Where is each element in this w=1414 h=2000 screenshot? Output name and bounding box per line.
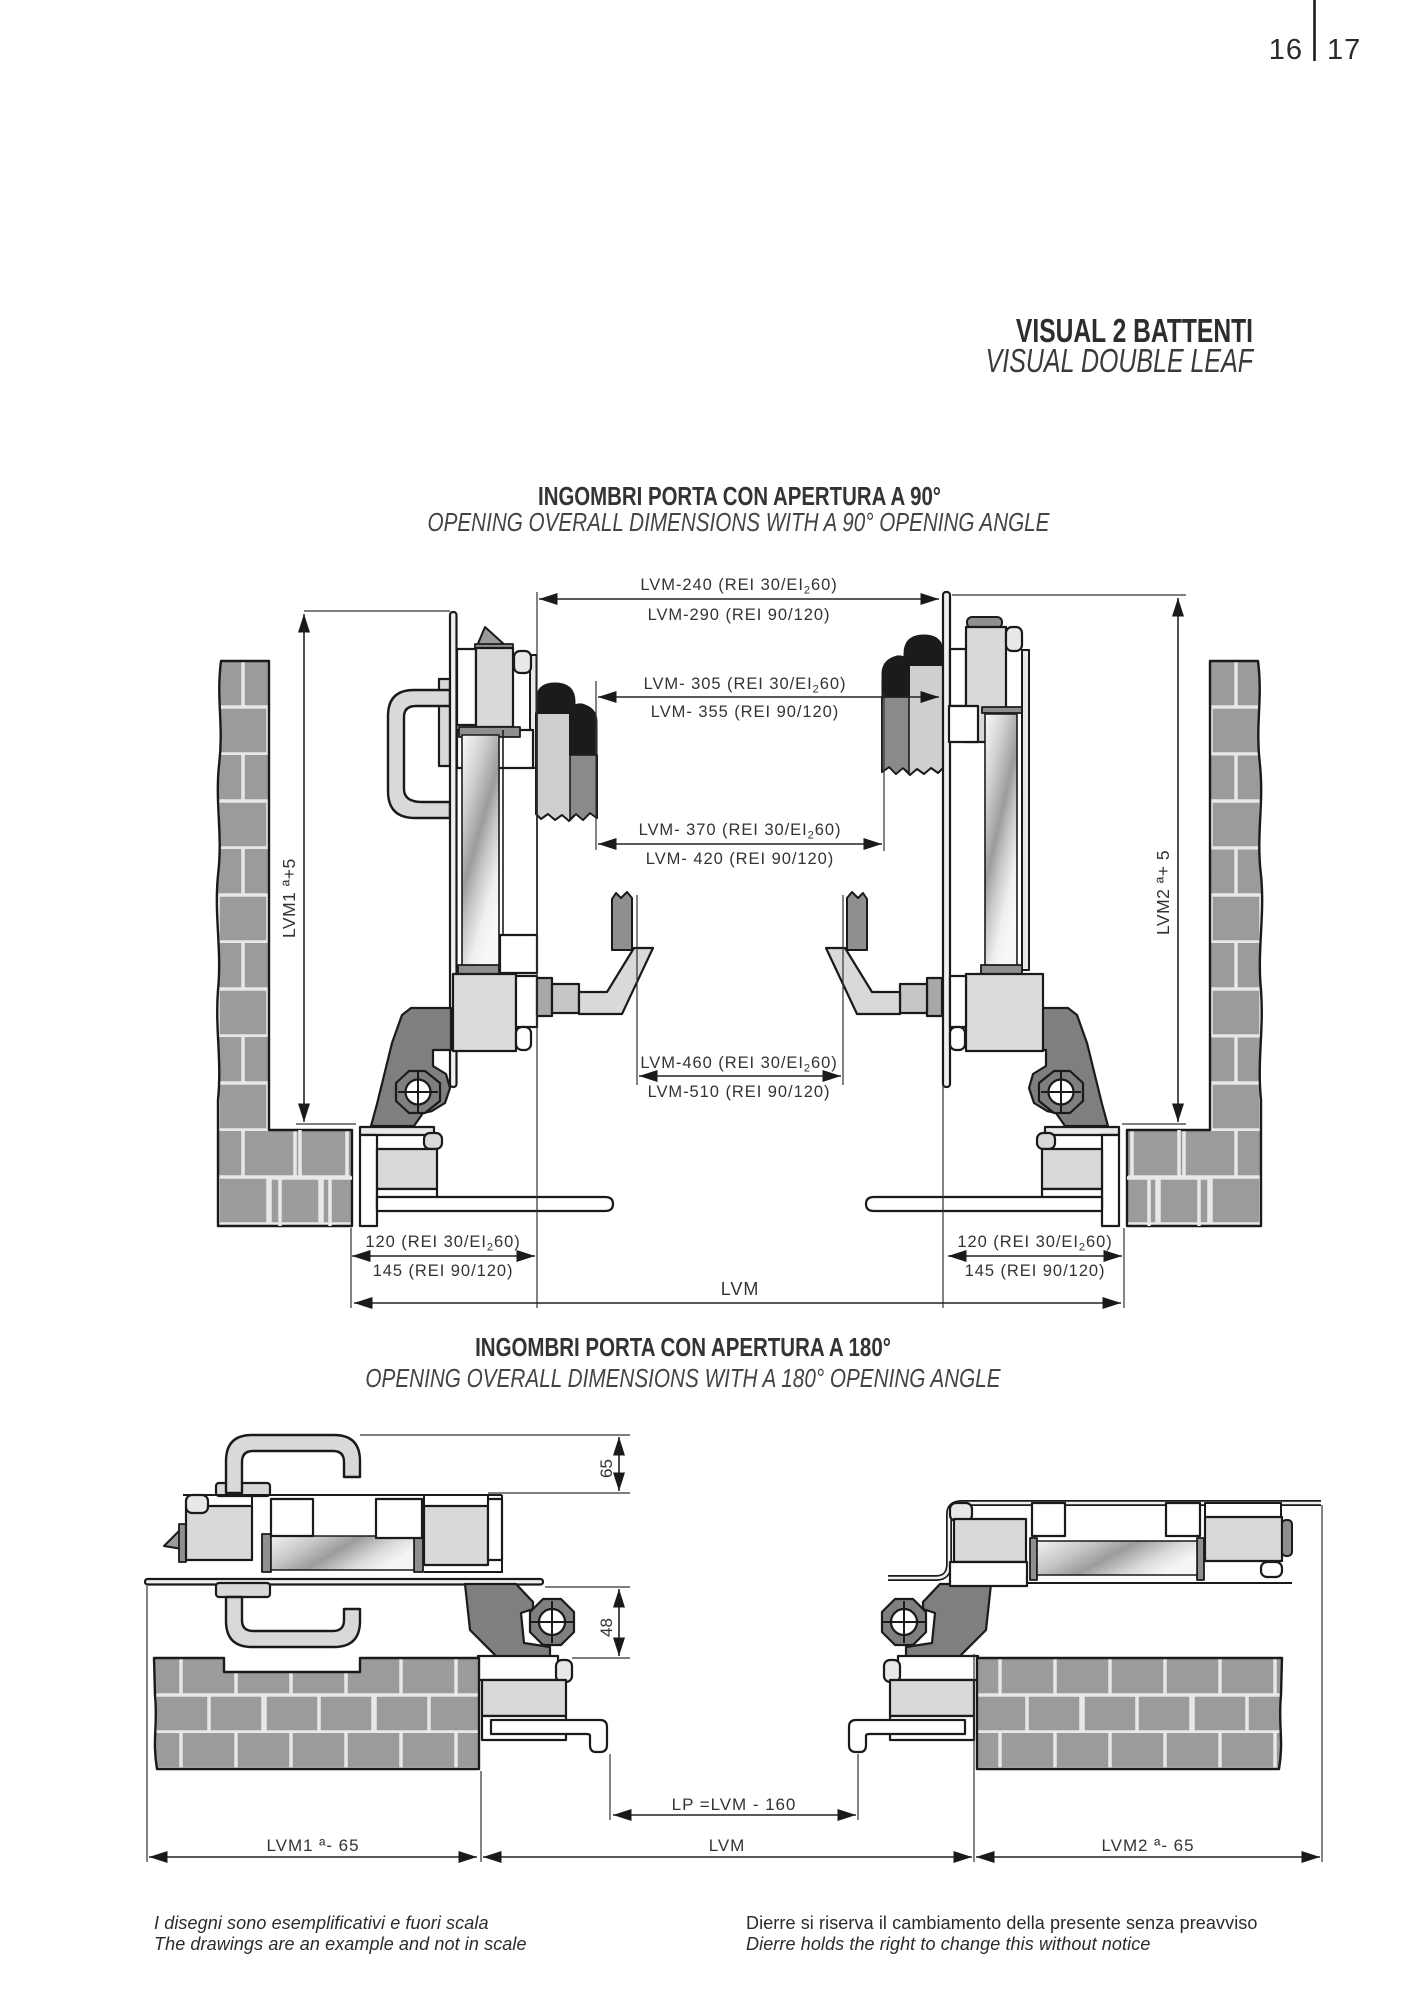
svg-text:120 (REI 30/EI260): 120 (REI 30/EI260) <box>365 1233 520 1254</box>
svg-text:Dierre holds the right to chan: Dierre holds the right to change this wi… <box>746 1934 1150 1954</box>
svg-text:LVM1 ª- 65: LVM1 ª- 65 <box>267 1836 360 1855</box>
svg-text:48: 48 <box>597 1618 616 1637</box>
svg-text:LVM-290 (REI 90/120): LVM-290 (REI 90/120) <box>648 606 831 624</box>
svg-text:16: 16 <box>1269 34 1303 66</box>
svg-text:LVM-240 (REI 30/EI260): LVM-240 (REI 30/EI260) <box>640 576 837 597</box>
svg-text:LVM-460 (REI 30/EI260): LVM-460 (REI 30/EI260) <box>640 1054 837 1075</box>
svg-text:LVM1 ª+5: LVM1 ª+5 <box>279 858 299 938</box>
svg-text:145 (REI 90/120): 145 (REI 90/120) <box>373 1262 514 1280</box>
svg-text:INGOMBRI PORTA CON APERTURA A: INGOMBRI PORTA CON APERTURA A 90° <box>538 482 941 511</box>
svg-text:Dierre si riserva il cambiamen: Dierre si riserva il cambiamento della p… <box>746 1913 1258 1933</box>
svg-text:LVM-510 (REI 90/120): LVM-510 (REI 90/120) <box>648 1083 831 1101</box>
svg-text:VISUAL DOUBLE LEAF: VISUAL DOUBLE LEAF <box>986 344 1255 380</box>
svg-text:LP =LVM - 160: LP =LVM - 160 <box>672 1795 797 1814</box>
svg-text:LVM: LVM <box>709 1836 746 1855</box>
svg-text:LVM- 370 (REI 30/EI260): LVM- 370 (REI 30/EI260) <box>639 821 842 842</box>
svg-text:120 (REI 30/EI260): 120 (REI 30/EI260) <box>957 1233 1112 1254</box>
svg-text:INGOMBRI PORTA CON APERTURA A: INGOMBRI PORTA CON APERTURA A 180° <box>475 1333 891 1362</box>
svg-text:LVM- 355 (REI 90/120): LVM- 355 (REI 90/120) <box>651 703 839 721</box>
svg-text:65: 65 <box>597 1459 616 1478</box>
svg-text:LVM2 ª+ 5: LVM2 ª+ 5 <box>1153 850 1173 935</box>
svg-text:17: 17 <box>1327 34 1361 66</box>
svg-text:LVM: LVM <box>721 1279 760 1299</box>
svg-text:LVM- 420 (REI 90/120): LVM- 420 (REI 90/120) <box>646 850 834 868</box>
svg-text:OPENING OVERALL DIMENSIONS WIT: OPENING OVERALL DIMENSIONS WITH A 90° OP… <box>428 508 1050 537</box>
svg-text:OPENING OVERALL DIMENSIONS WIT: OPENING OVERALL DIMENSIONS WITH A 180° O… <box>365 1364 1000 1393</box>
svg-text:145 (REI 90/120): 145 (REI 90/120) <box>965 1262 1106 1280</box>
svg-text:LVM2 ª- 65: LVM2 ª- 65 <box>1102 1836 1195 1855</box>
svg-text:LVM- 305 (REI 30/EI260): LVM- 305 (REI 30/EI260) <box>644 675 847 696</box>
svg-text:I disegni sono esemplificativi: I disegni sono esemplificativi e fuori s… <box>154 1913 489 1933</box>
svg-text:The drawings are an example an: The drawings are an example and not in s… <box>154 1934 527 1954</box>
